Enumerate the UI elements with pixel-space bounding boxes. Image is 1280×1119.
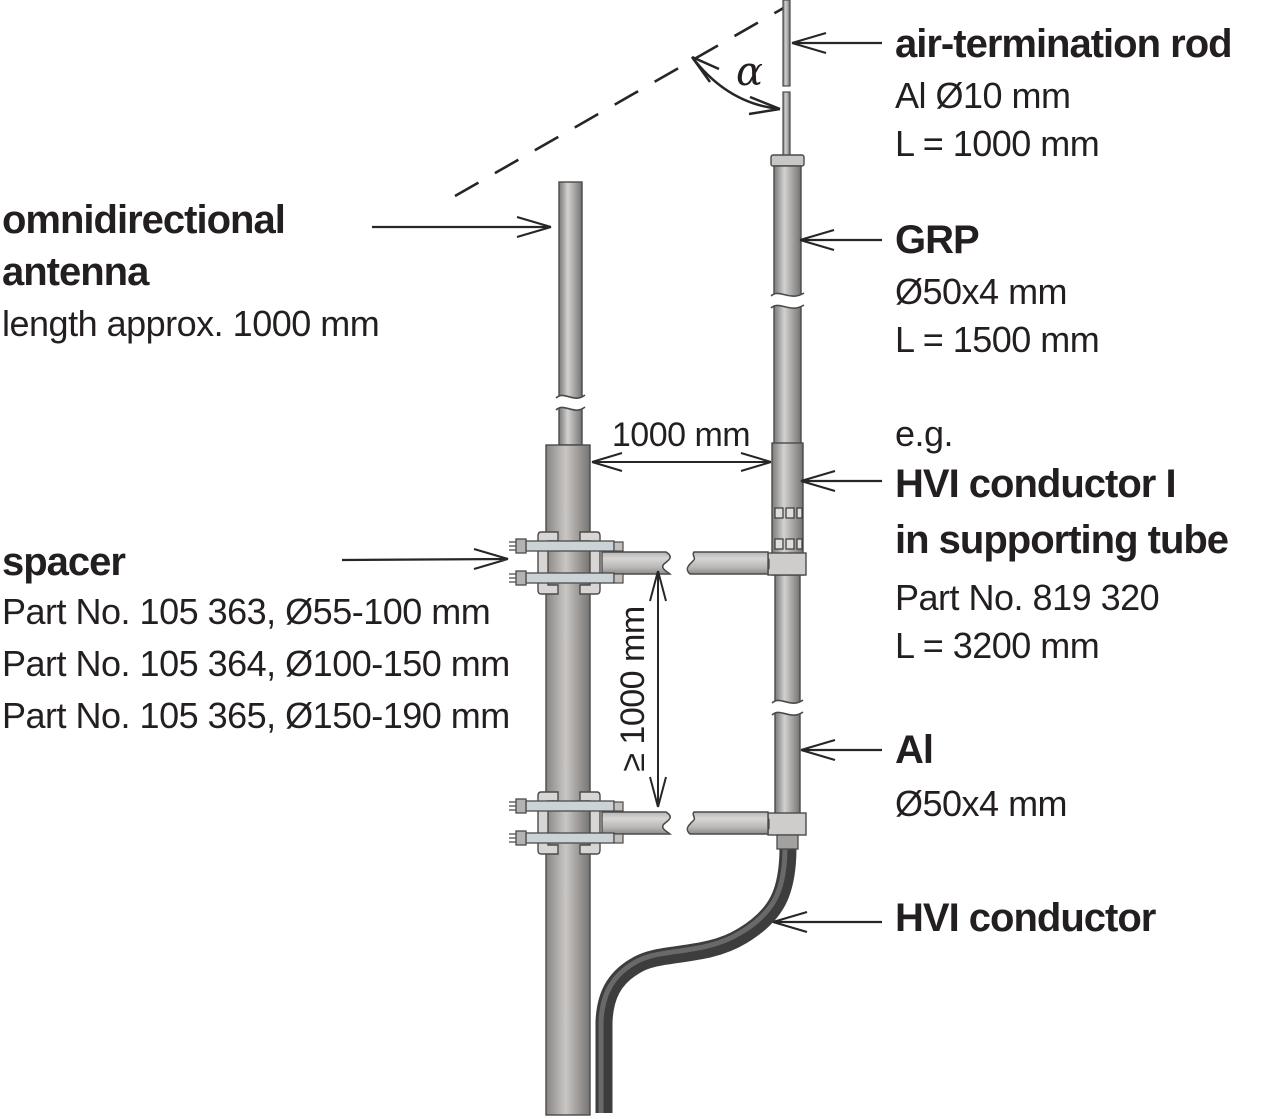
antenna-pole-break [556,395,585,410]
al-tube [775,575,800,815]
vertical-dimension-arrow [650,571,666,807]
grp-tube [774,166,801,454]
al-label-title: Al [895,730,933,770]
spacer-label-part2: Part No. 105 364, Ø100-150 mm [2,646,510,682]
hvi-supporting-tube-label-title2: in supporting tube [895,520,1228,560]
antenna-label-detail: length approx. 1000 mm [2,306,379,342]
spacer-label-arrow [342,549,508,569]
diagram-antenna-lightning-protection: omnidirectional antenna length approx. 1… [0,0,1280,1119]
antenna-label-arrow [372,217,551,237]
al-label-arrow [801,740,882,760]
hvi-conductor-label-arrow [773,912,882,932]
air-termination-rod [783,0,790,86]
hvi-conductor-cable [601,847,788,1113]
spacer-label-title: spacer [2,542,125,582]
air-termination-rod-label-detail1: Al Ø10 mm [895,78,1071,114]
al-label-detail1: Ø50x4 mm [895,786,1067,822]
horizontal-dimension-arrow [592,453,771,471]
grp-tube-cap [771,155,804,166]
grp-label-detail2: L = 1500 mm [895,322,1099,358]
vertical-dimension-value: ≥ 1000 mm [616,606,650,771]
protection-angle-dashed-line [455,6,787,196]
hvi-supporting-tube-label-prefix: e.g. [895,416,953,452]
horizontal-dimension-value: 1000 mm [595,418,767,452]
spacer-label-part1: Part No. 105 363, Ø55-100 mm [2,594,490,630]
grp-label-detail1: Ø50x4 mm [895,274,1067,310]
hvi-supporting-tube-label-detail2: L = 3200 mm [895,628,1099,664]
hvi-conductor-i-label-arrow [801,471,882,491]
grp-label-title: GRP [895,220,979,260]
grp-tube-break [771,293,804,308]
hvi-supporting-tube-label-detail1: Part No. 819 320 [895,580,1159,616]
grp-label-arrow [800,230,882,250]
al-tube-break [772,700,803,715]
air-termination-rod-label-detail2: L = 1000 mm [895,126,1099,162]
antenna-label-line2: antenna [2,252,148,292]
hvi-supporting-tube-label-title1: HVI conductor I [895,464,1176,504]
protection-angle-symbol: α [736,52,763,92]
hvi-conductor-label-title: HVI conductor [895,898,1155,938]
tube-end-cap [777,835,798,849]
air-termination-rod-label-title: air-termination rod [895,24,1232,64]
antenna-label-line1: omnidirectional [2,200,285,240]
spacer-label-part3: Part No. 105 365, Ø150-190 mm [2,698,510,734]
air-termination-rod-label-arrow [792,33,882,53]
upper-spacer-break [672,548,688,578]
air-termination-rod-lower [783,92,790,156]
lower-spacer-break [672,808,688,838]
